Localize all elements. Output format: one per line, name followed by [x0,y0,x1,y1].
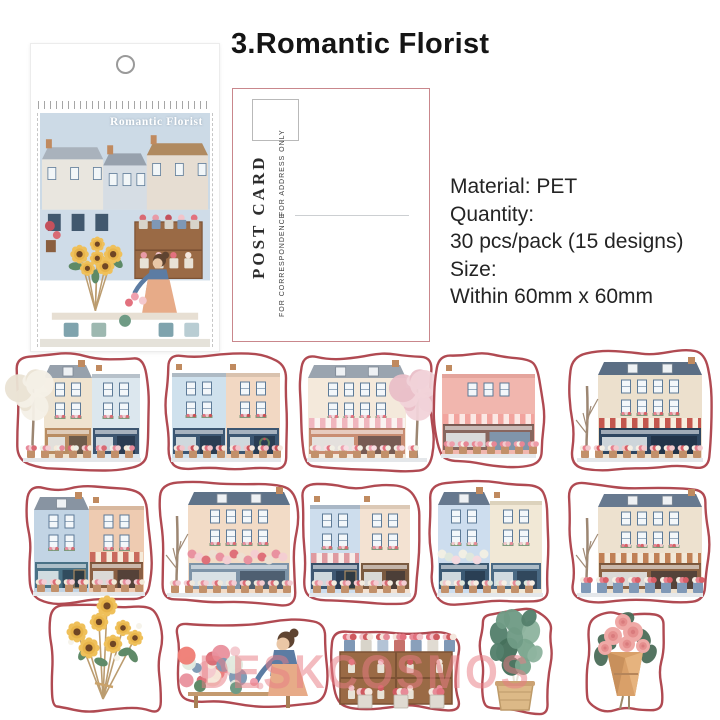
sticker-potted-plant-woven-basket [475,606,555,718]
sticker-flower-display-cabinet [328,628,464,714]
sticker-blue-shop-pink-awning-menu-board [298,481,422,609]
sticker-florist-arranging-bouquets [170,616,332,710]
sticker-blue-peach-shops-chalkboard [22,482,156,608]
sticker-wooden-shopfront-flower-buckets [566,479,714,609]
sticker-blue-cream-pair-white-roses [426,477,554,609]
sticker-peach-townhouse-rose-canopy [156,477,302,609]
product-photo: 3.Romantic Florist Romantic Florist POST… [0,0,720,720]
sticker-pink-bouquet-kraft-wrap [583,608,667,716]
sticker-twin-storefronts-wreath-door [160,349,292,474]
sticker-pink-facade-flower-boutique [430,350,547,470]
sticker-red-striped-awning-flower-stall [566,347,714,474]
sticker-grid [0,0,720,720]
sticker-sunflower-bouquet [44,602,166,717]
sticker-pink-awning-shop-blossom-tree [296,350,438,474]
sticker-flower-shop-white-blossom-tree [12,350,152,474]
